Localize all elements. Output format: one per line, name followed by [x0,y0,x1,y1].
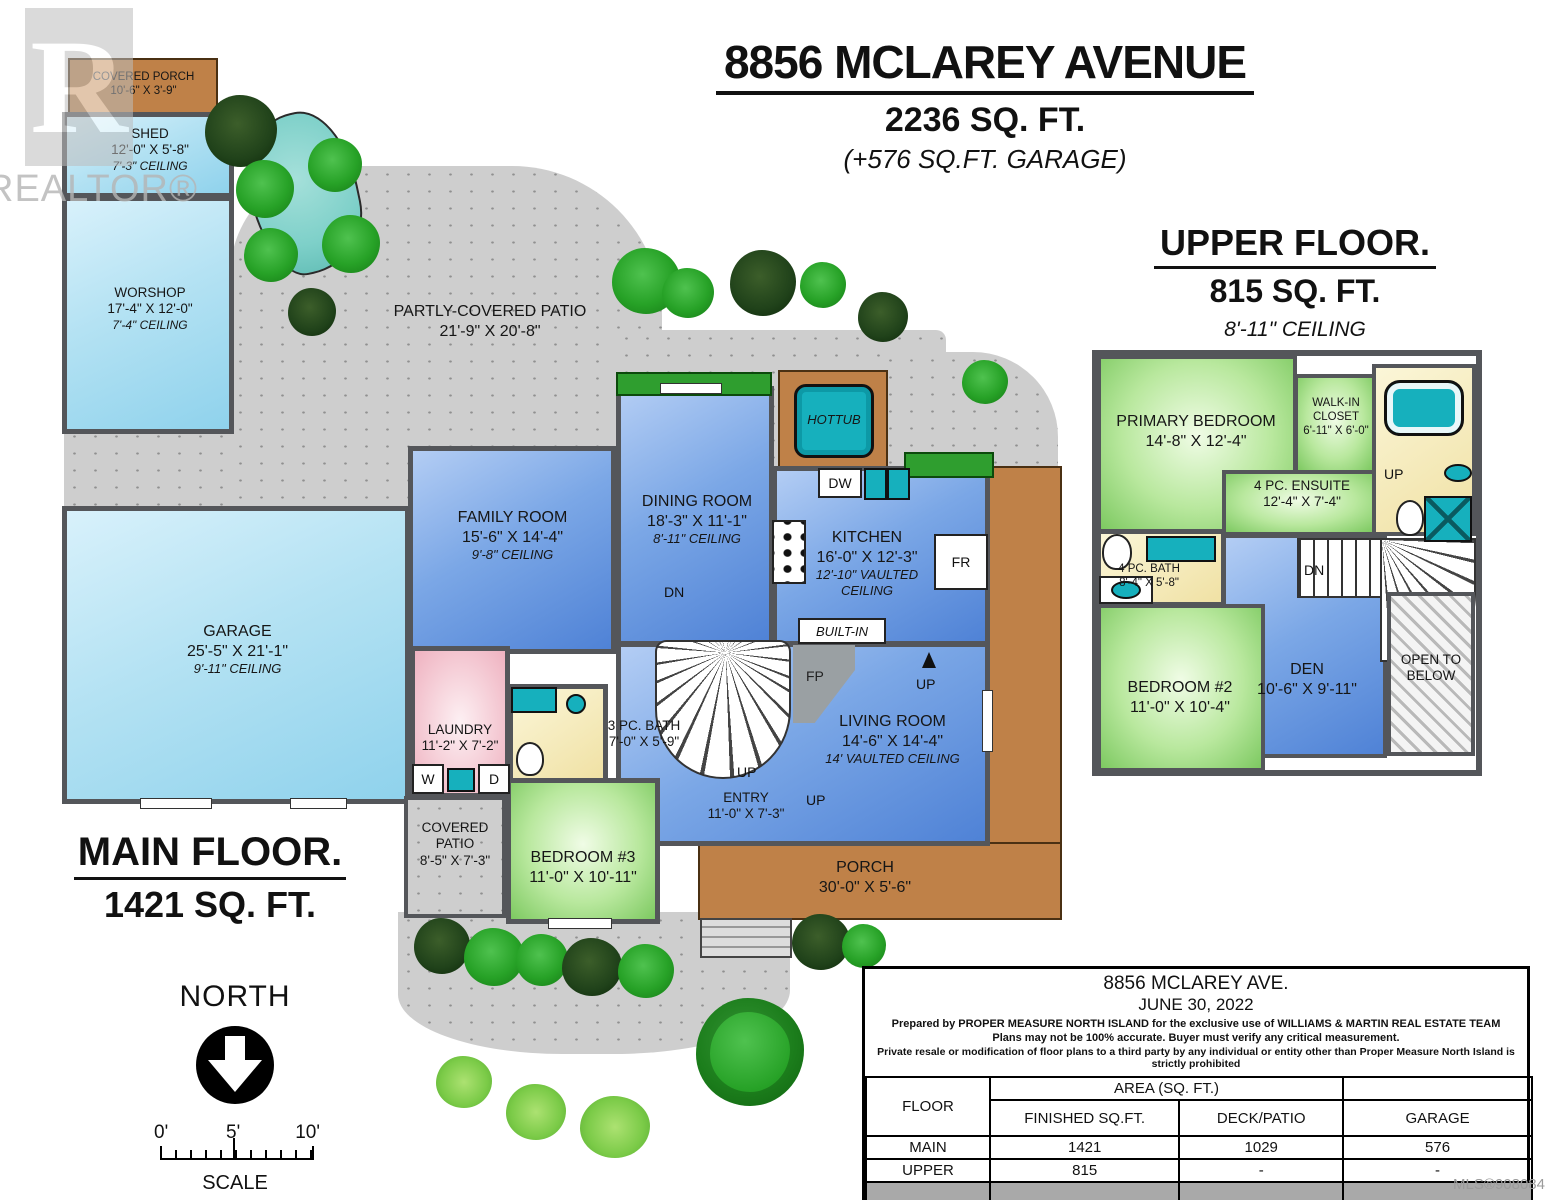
family-room-label: FAMILY ROOM 15'-6" X 14'-4" 9'-8" CEILIN… [420,508,605,563]
spacer-cell [866,1182,990,1200]
porch-label: PORCH 30'-0" X 5'-6" [760,858,970,897]
workshop-label: WORSHOP 17'-4" X 12'-0" 7'-4" CEILING [70,285,230,333]
scale-10: 10' [295,1122,320,1144]
tree-icon [842,924,886,968]
window [548,918,612,929]
realtor-logo-letter: R [30,20,128,155]
scale-bar: 0' 5' 10' [160,1122,310,1168]
dryer-label: D [489,771,499,787]
info-panel: 8856 MCLAREY AVE. JUNE 30, 2022 Prepared… [862,966,1530,1200]
info-panel-header: 8856 MCLAREY AVE. JUNE 30, 2022 Prepared… [865,969,1527,1076]
info-note-3: Private resale or modification of floor … [871,1046,1521,1070]
fridge-box: FR [934,534,988,590]
fp-marker: FP [806,668,824,684]
main-floor-area: 1421 SQ. FT. [60,884,360,926]
ensuite-sink [1444,464,1472,482]
fern-icon [506,1084,566,1140]
open-to-below-label: OPEN TO BELOW [1398,652,1464,685]
area-table: FLOOR AREA (SQ. FT.) FINISHED SQ.FT. DEC… [865,1076,1533,1200]
ensuite-shower [1424,496,1472,542]
kitchen-sink [864,468,910,500]
planter-box [904,452,994,478]
cell-deck: - [1179,1159,1343,1182]
cell-floor: UPPER [866,1159,990,1182]
mls-number: MLS®908084 [1453,1176,1545,1193]
up-marker: UP [1384,466,1403,482]
fern-icon [580,1096,650,1158]
ensuite-tub [1384,380,1464,436]
up-marker: UP [916,676,935,692]
upper-floor-title-block: UPPER FLOOR. 815 SQ. FT. 8'-11" CEILING [1110,222,1480,342]
fern-icon [436,1056,492,1108]
page-title-garage-note: (+576 SQ.FT. GARAGE) [640,144,1330,175]
window [140,798,212,809]
bath3-shower [511,687,557,713]
built-in-box: BUILT-IN [798,618,886,644]
realtor-watermark-text: REALTOR® [0,168,198,211]
spacer-cell [1179,1182,1343,1200]
north-arrow-icon [196,1026,274,1104]
window [660,383,722,394]
bath3-sink [566,694,586,714]
tree-icon [308,138,362,192]
col-header-floor: FLOOR [866,1077,990,1136]
hottub-label: HOTTUB [798,412,870,428]
dryer-box: D [478,764,510,794]
up-arrow-icon [922,652,936,668]
tree-icon [516,934,568,986]
cell-garage: 576 [1343,1136,1532,1159]
washer-box: W [412,764,444,794]
dining-room-label: DINING ROOM 18'-3" X 11'-1" 8'-11" CEILI… [612,492,782,547]
deck-right-strip [988,466,1062,846]
bath3-label: 3 PC. BATH 7'-0" X 5'-9" [590,718,698,751]
north-arrow-head [208,1060,262,1092]
main-floor-title: MAIN FLOOR. [74,830,346,880]
tree-icon [696,998,804,1106]
north-arrow-shaft [225,1036,245,1062]
cell-deck: 1029 [1179,1136,1343,1159]
main-floor-title-block: MAIN FLOOR. 1421 SQ. FT. [60,830,360,926]
upper-floor-title: UPPER FLOOR. [1154,222,1436,269]
compass-block: NORTH 0' 5' 10' SCALE [140,980,330,1195]
tree-icon [244,228,298,282]
page-title-block: 8856 MCLAREY AVENUE 2236 SQ. FT. (+576 S… [640,35,1330,175]
tree-icon [414,918,470,974]
info-date: JUNE 30, 2022 [871,995,1521,1015]
tree-icon [662,268,714,318]
bath3-toilet [516,742,544,776]
dn-marker: DN [1304,562,1324,578]
tree-icon [562,938,622,996]
scale-ticks [160,1146,314,1160]
col-header-deck: DECK/PATIO [1179,1100,1343,1136]
up-marker: UP [737,764,756,780]
cell-finished: 815 [990,1159,1179,1182]
info-address: 8856 MCLAREY AVE. [871,973,1521,995]
tree-icon [322,215,380,273]
table-row: UPPER 815 - - [866,1159,1532,1182]
kitchen-label: KITCHEN 16'-0" X 12'-3" 12'-10" VAULTED … [802,528,932,599]
laundry-label: LAUNDRY 11'-2" X 7'-2" [412,722,508,755]
info-note-2: Plans may not be 100% accurate. Buyer mu… [871,1032,1521,1044]
scale-midtick [233,1138,235,1158]
garage-label: GARAGE 25'-5" X 21'-1" 9'-11" CEILING [140,622,335,677]
window [290,798,347,809]
scale-0: 0' [154,1122,168,1144]
dishwasher-label: DW [828,475,851,491]
tree-icon [800,262,846,308]
built-in-label: BUILT-IN [816,624,868,639]
primary-bedroom-label: PRIMARY BEDROOM 14'-8" X 12'-4" [1100,412,1292,451]
page-title-area: 2236 SQ. FT. [640,101,1330,140]
covered-patio-label: COVERED PATIO 8'-5" X 7'-3" [408,820,502,869]
spiral-stairs [655,640,791,779]
page-title: 8856 MCLAREY AVENUE [716,35,1254,95]
col-header-area: AREA (SQ. FT.) [990,1077,1343,1100]
fridge-label: FR [952,554,971,570]
den-label: DEN 10'-6" X 9'-11" [1232,660,1382,699]
bath4-tub [1146,536,1216,562]
upper-floor-ceiling: 8'-11" CEILING [1110,318,1480,342]
info-note-1: Prepared by PROPER MEASURE NORTH ISLAND … [871,1018,1521,1030]
dn-marker: DN [664,584,684,600]
laundry-sink [447,768,475,792]
spacer-cell [990,1182,1179,1200]
bedroom3-label: BEDROOM #3 11'-0" X 10'-11" [508,848,658,887]
entry-label: ENTRY 11'-0" X 7'-3" [688,790,804,823]
tree-icon [792,914,850,970]
tree-icon [618,944,674,998]
north-label: NORTH [140,980,330,1014]
tree-icon [962,360,1008,404]
tree-icon [288,288,336,336]
tree-icon [730,250,796,316]
table-row: MAIN 1421 1029 576 [866,1136,1532,1159]
walk-in-closet-label: WALK-IN CLOSET 6'-11" X 6'-0" [1300,396,1372,438]
col-header-garage: GARAGE [1343,1100,1532,1136]
cell-finished: 1421 [990,1136,1179,1159]
table-spacer-row [866,1182,1532,1200]
bath4-label: 4 PC. BATH 8'-4" X 5'-8" [1106,562,1192,590]
cell-floor: MAIN [866,1136,990,1159]
patio-label: PARTLY-COVERED PATIO 21'-9" X 20'-8" [350,302,630,341]
up-marker: UP [806,792,825,808]
col-header-blank [1343,1077,1532,1100]
ensuite-label: 4 PC. ENSUITE 12'-4" X 7'-4" [1236,478,1368,511]
tree-icon [858,292,908,342]
tree-icon [236,160,294,218]
col-header-finished: FINISHED SQ.FT. [990,1100,1179,1136]
tree-icon [464,928,524,986]
dishwasher-box: DW [818,468,862,498]
washer-label: W [421,771,434,787]
living-room-label: LIVING ROOM 14'-6" X 14'-4" 14' VAULTED … [800,712,985,767]
entry-steps [700,918,792,958]
scale-label: SCALE [140,1172,330,1195]
floor-plan-page: DW FR W D BUILT-IN COVERED PORCH 10'-6" … [0,0,1553,1200]
upper-floor-area: 815 SQ. FT. [1110,273,1480,310]
ensuite-toilet [1396,500,1424,536]
realtor-logo-icon: R [25,8,133,166]
